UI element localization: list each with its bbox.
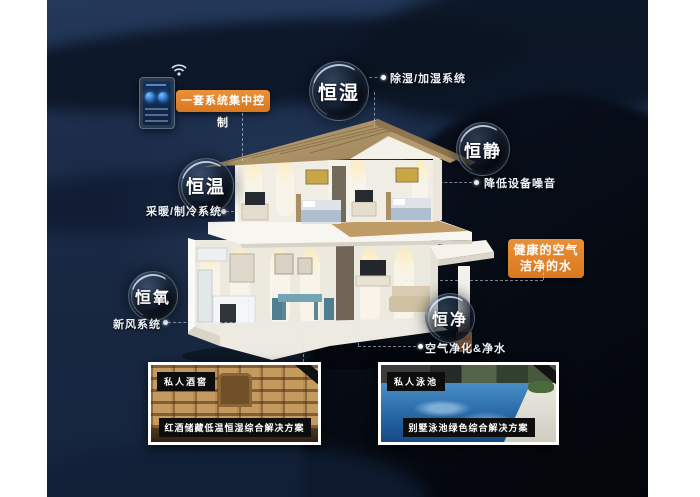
connector-line <box>405 280 543 281</box>
bubble-label: 恒湿 <box>318 78 360 105</box>
bubble-label: 恒氧 <box>135 284 171 308</box>
connector-line <box>358 282 359 346</box>
bubble-constant-quiet: 恒静 <box>456 122 510 176</box>
pool-greenery <box>528 381 554 393</box>
wine-display-arch <box>218 373 252 407</box>
noise-reduction-label: 降低设备噪音 <box>484 175 556 191</box>
connector-line <box>242 113 243 161</box>
connector-line <box>303 330 304 362</box>
connector-dot <box>418 344 423 349</box>
fresh-air-system-label: 新风系统 <box>113 316 161 332</box>
phone-row <box>145 114 168 116</box>
bubble-label: 恒温 <box>186 173 226 199</box>
pool-badge: 私人泳池 <box>387 372 445 391</box>
smart-control-phone <box>139 77 175 129</box>
phone-row <box>145 120 168 122</box>
bubble-constant-oxygen: 恒氧 <box>128 271 178 321</box>
bubble-label: 恒静 <box>464 137 502 162</box>
pool-card: 私人泳池 别墅泳池绿色综合解决方案 <box>378 362 559 445</box>
phone-screen <box>143 81 171 125</box>
wine-cellar-card: 私人酒窖 红酒储藏低温恒湿综合解决方案 <box>148 362 321 445</box>
bubble-label: 恒净 <box>432 306 468 330</box>
connector-dot <box>163 320 168 325</box>
connector-line <box>248 280 249 322</box>
connector-line <box>358 346 416 347</box>
infographic-page: 一套系统集中控制 健康的空气 洁净的水 恒湿 除湿/加湿系统 恒静 降 <box>0 0 700 497</box>
wine-cellar-badge: 私人酒窖 <box>157 372 215 391</box>
clean-water-line: 洁净的水 <box>508 258 584 274</box>
healthy-air-line: 健康的空气 <box>508 242 584 258</box>
central-control-callout: 一套系统集中控制 <box>176 90 270 112</box>
wine-cellar-photo: 私人酒窖 红酒储藏低温恒湿综合解决方案 <box>151 365 318 442</box>
phone-titlebar <box>146 84 166 86</box>
connector-dot <box>474 180 479 185</box>
bubble-constant-purity: 恒净 <box>425 293 475 343</box>
phone-dial-right <box>158 92 168 102</box>
humidity-system-label: 除湿/加湿系统 <box>390 70 466 86</box>
healthy-air-water-callout: 健康的空气 洁净的水 <box>508 239 584 278</box>
purification-label: 空气净化&净水 <box>425 340 506 356</box>
wine-cellar-caption: 红酒储藏低温恒湿综合解决方案 <box>158 418 310 437</box>
bubble-constant-humidity: 恒湿 <box>309 61 369 121</box>
phone-row <box>145 108 168 110</box>
artwork-canvas: 一套系统集中控制 健康的空气 洁净的水 恒湿 除湿/加湿系统 恒静 降 <box>47 0 648 497</box>
phone-dial-left <box>145 92 155 102</box>
pool-photo: 私人泳池 别墅泳池绿色综合解决方案 <box>381 365 556 442</box>
connector-line <box>226 211 259 212</box>
pool-caption: 别墅泳池绿色综合解决方案 <box>402 418 534 437</box>
connector-line <box>543 268 544 280</box>
connector-line <box>420 182 472 183</box>
hvac-system-label: 采暖/制冷系统 <box>146 203 222 219</box>
connector-dot <box>381 75 386 80</box>
connector-line <box>168 322 248 323</box>
wifi-icon <box>170 62 188 77</box>
connector-line <box>374 92 375 126</box>
